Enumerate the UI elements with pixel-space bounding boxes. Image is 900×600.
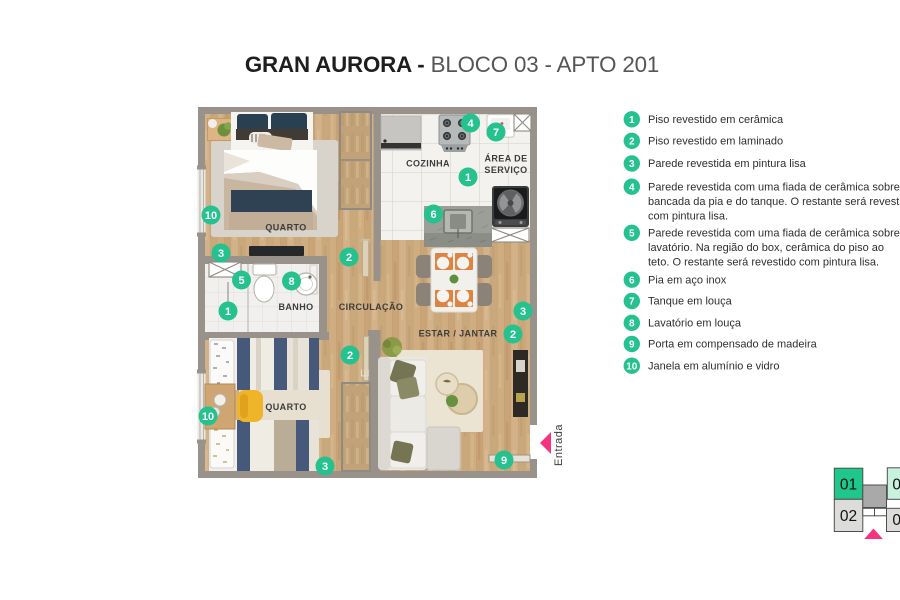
svg-text:5: 5 (238, 275, 244, 287)
svg-text:Lavatório em louça: Lavatório em louça (648, 318, 742, 330)
svg-text:7: 7 (493, 127, 499, 139)
svg-text:Piso revestido em cerâmica: Piso revestido em cerâmica (648, 114, 784, 126)
svg-text:8: 8 (288, 276, 294, 288)
svg-text:4: 4 (467, 118, 474, 130)
svg-text:SERVIÇO: SERVIÇO (484, 165, 527, 175)
svg-text:3: 3 (322, 461, 328, 473)
svg-text:lavatório. Na região do box, c: lavatório. Na região do box, cerâmica do… (648, 242, 884, 254)
svg-text:Parede revestida em pintura li: Parede revestida em pintura lisa (648, 158, 807, 170)
svg-text:Parede revestida com uma fiada: Parede revestida com uma fiada de cerâmi… (648, 181, 900, 193)
svg-text:GRAN AURORA - BLOCO 03 - APTO: GRAN AURORA - BLOCO 03 - APTO 201 (245, 52, 659, 77)
svg-text:2: 2 (347, 350, 353, 362)
svg-text:teto. O restante será revestid: teto. O restante será revestido com pint… (648, 257, 879, 269)
svg-text:Porta em compensado de madeira: Porta em compensado de madeira (648, 339, 818, 351)
svg-text:2: 2 (510, 329, 516, 341)
svg-text:10: 10 (202, 411, 214, 423)
svg-text:6: 6 (629, 275, 635, 286)
svg-text:BANHO: BANHO (279, 302, 314, 312)
svg-text:ESTAR / JANTAR: ESTAR / JANTAR (419, 329, 498, 339)
svg-text:02: 02 (840, 508, 857, 525)
svg-text:Tanque em louça: Tanque em louça (648, 296, 733, 308)
svg-text:4: 4 (629, 182, 635, 193)
svg-text:COZINHA: COZINHA (406, 159, 450, 169)
svg-text:1: 1 (225, 306, 231, 318)
svg-text:9: 9 (629, 340, 635, 351)
svg-text:04: 04 (892, 512, 900, 529)
svg-text:QUARTO: QUARTO (265, 402, 306, 412)
svg-text:CIRCULAÇÃO: CIRCULAÇÃO (339, 302, 404, 312)
svg-text:Pia em aço inox: Pia em aço inox (648, 274, 727, 286)
svg-text:ÁREA DE: ÁREA DE (485, 154, 528, 164)
svg-text:8: 8 (629, 318, 635, 329)
svg-text:10: 10 (205, 210, 217, 222)
svg-text:Entrada: Entrada (553, 424, 565, 466)
svg-text:01: 01 (840, 477, 857, 494)
svg-text:Janela em alumínio e vidro: Janela em alumínio e vidro (648, 360, 779, 372)
svg-text:3: 3 (520, 306, 526, 318)
svg-text:5: 5 (629, 228, 635, 239)
svg-text:1: 1 (465, 172, 471, 184)
svg-text:3: 3 (218, 248, 224, 260)
svg-text:10: 10 (626, 361, 638, 372)
svg-text:bancada da pia e do tanque. O: bancada da pia e do tanque. O restante s… (648, 196, 900, 208)
svg-text:3: 3 (629, 159, 635, 170)
svg-text:2: 2 (629, 136, 635, 147)
svg-text:7: 7 (629, 297, 635, 308)
svg-text:03: 03 (892, 477, 900, 494)
svg-text:QUARTO: QUARTO (265, 223, 306, 233)
svg-text:Piso revestido em laminado: Piso revestido em laminado (648, 136, 783, 148)
svg-text:9: 9 (501, 455, 507, 467)
svg-text:Parede revestida com uma fiada: Parede revestida com uma fiada de cerâmi… (648, 228, 900, 240)
svg-text:1: 1 (629, 115, 635, 126)
svg-text:com pintura lisa.: com pintura lisa. (648, 211, 728, 223)
svg-text:2: 2 (346, 252, 352, 264)
svg-text:6: 6 (430, 209, 436, 221)
